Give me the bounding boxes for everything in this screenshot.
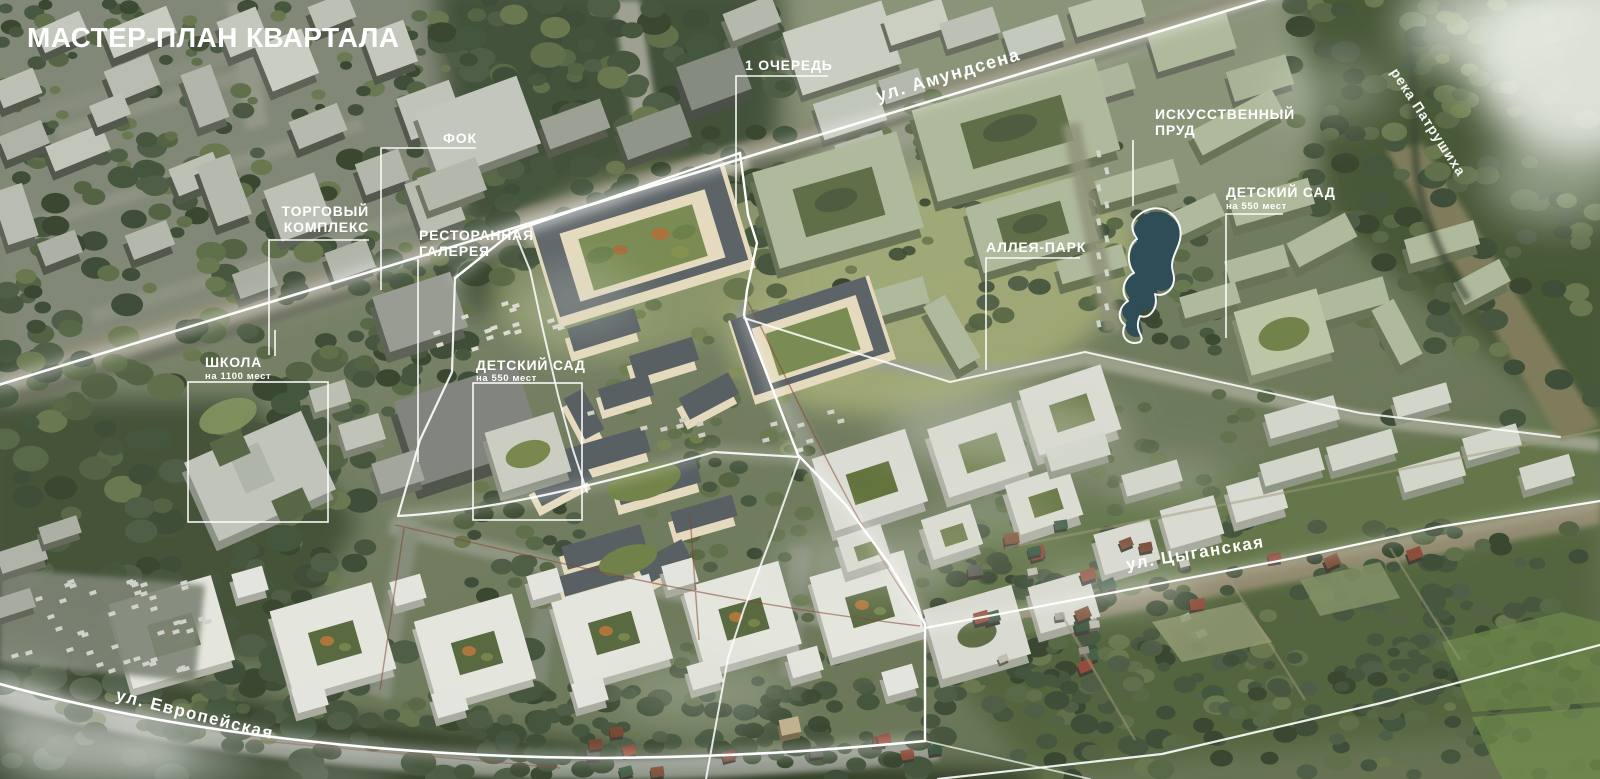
svg-text:ТОРГОВЫЙ: ТОРГОВЫЙ xyxy=(282,202,369,219)
svg-text:ДЕТСКИЙ САД: ДЕТСКИЙ САД xyxy=(476,356,586,373)
svg-text:на 550 мест: на 550 мест xyxy=(1226,201,1287,212)
svg-text:на 550 мест: на 550 мест xyxy=(476,373,537,384)
svg-text:ИСКУССТВЕННЫЙ: ИСКУССТВЕННЫЙ xyxy=(1155,105,1295,122)
svg-text:ШКОЛА: ШКОЛА xyxy=(205,354,262,370)
svg-text:АЛЛЕЯ-ПАРК: АЛЛЕЯ-ПАРК xyxy=(986,239,1086,255)
svg-text:ДЕТСКИЙ САД: ДЕТСКИЙ САД xyxy=(1226,183,1336,200)
svg-text:ГАЛЕРЕЯ: ГАЛЕРЕЯ xyxy=(419,243,490,259)
svg-text:РЕСТОРАННАЯ: РЕСТОРАННАЯ xyxy=(419,227,534,243)
svg-text:1 ОЧЕРЕДЬ: 1 ОЧЕРЕДЬ xyxy=(745,57,833,73)
svg-text:МАСТЕР-ПЛАН КВАРТАЛА: МАСТЕР-ПЛАН КВАРТАЛА xyxy=(27,22,399,53)
svg-text:КОМПЛЕКС: КОМПЛЕКС xyxy=(284,219,369,235)
svg-text:ФОК: ФОК xyxy=(443,130,477,146)
svg-text:ПРУД: ПРУД xyxy=(1155,122,1195,138)
svg-text:на 1100 мест: на 1100 мест xyxy=(205,371,271,382)
